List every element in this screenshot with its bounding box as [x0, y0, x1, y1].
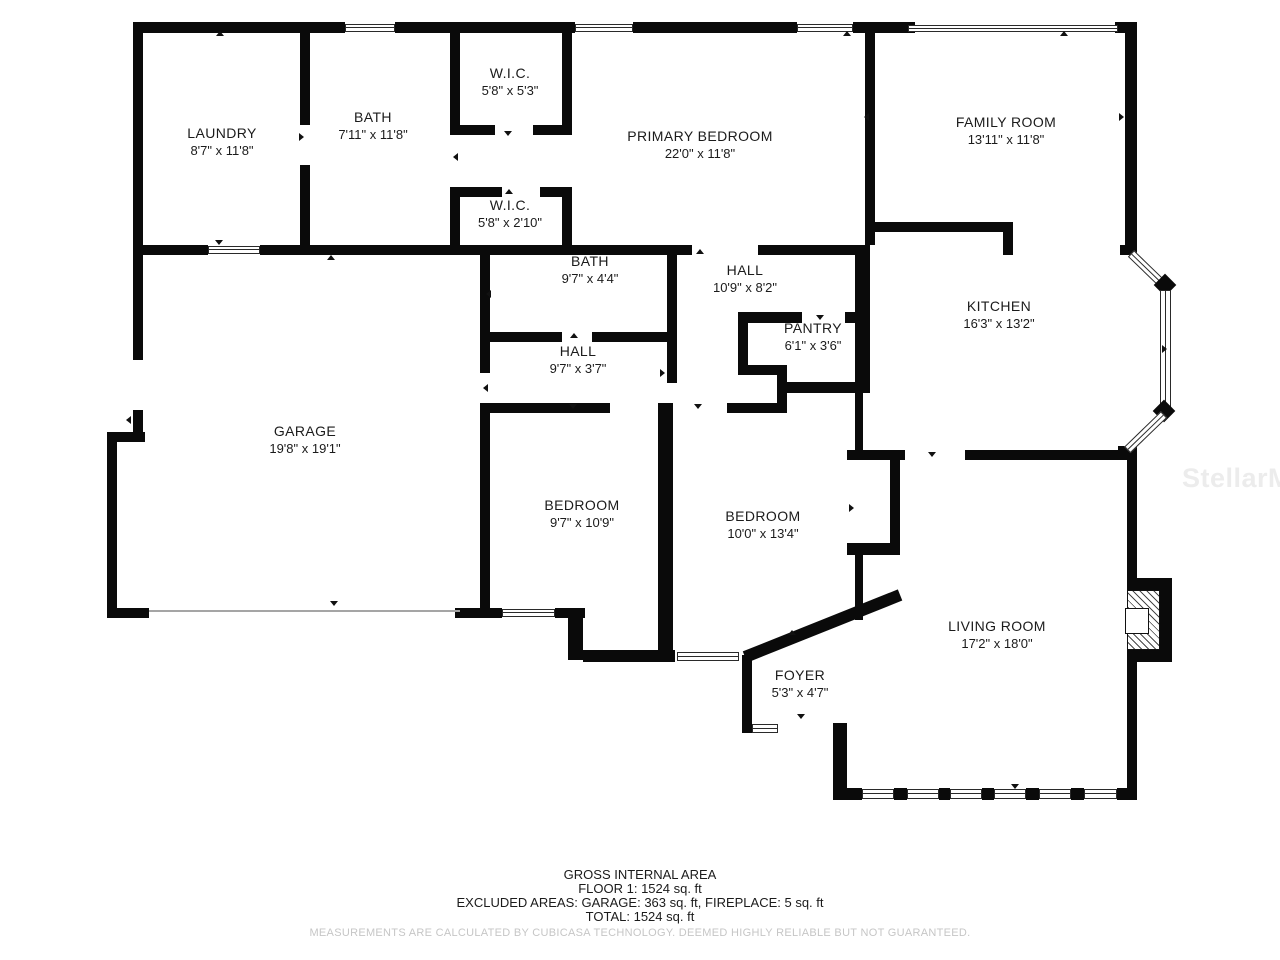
- window: [502, 609, 555, 617]
- room-name: W.I.C.: [478, 197, 542, 214]
- window: [994, 789, 1026, 799]
- wall: [890, 450, 900, 555]
- floor-plan: LAUNDRY 8'7" x 11'8" BATH 7'11" x 11'8" …: [0, 0, 1280, 960]
- room-dimensions: 10'9" x 8'2": [713, 279, 777, 296]
- door-arrow-icon: [330, 601, 338, 606]
- wall: [260, 245, 692, 255]
- room-dimensions: 6'1" x 3'6": [784, 337, 842, 354]
- window: [1084, 789, 1117, 799]
- room-name: HALL: [713, 262, 777, 279]
- door-arrow-icon: [696, 249, 704, 254]
- door-arrow-icon: [504, 131, 512, 136]
- wall: [450, 187, 460, 245]
- wall: [667, 253, 677, 342]
- door-arrow-icon: [299, 133, 304, 141]
- wall: [1115, 22, 1137, 33]
- wall: [133, 22, 345, 33]
- wall: [1003, 232, 1013, 255]
- room-label-living-room: LIVING ROOM 17'2" x 18'0": [948, 618, 1046, 652]
- room-name: FOYER: [772, 667, 829, 684]
- door-arrow-icon: [1011, 784, 1019, 789]
- wall: [1117, 788, 1137, 800]
- window: [345, 24, 395, 32]
- room-name: BATH: [562, 253, 619, 270]
- wall: [855, 393, 863, 458]
- wall: [894, 788, 907, 800]
- wall: [1127, 459, 1137, 578]
- bay-window: [1124, 411, 1167, 453]
- door-arrow-icon: [570, 333, 578, 338]
- room-label-wic-upper: W.I.C. 5'8" x 5'3": [482, 65, 539, 99]
- room-label-hall-lower: HALL 9'7" x 3'7": [550, 343, 607, 377]
- room-label-bedroom-right: BEDROOM 10'0" x 13'4": [725, 508, 800, 542]
- room-dimensions: 22'0" x 11'8": [627, 145, 773, 162]
- room-name: FAMILY ROOM: [956, 114, 1056, 131]
- wall: [727, 403, 782, 413]
- wall: [1127, 662, 1137, 788]
- door-arrow-icon: [215, 240, 223, 245]
- window: [907, 789, 939, 799]
- wall: [583, 650, 675, 662]
- room-dimensions: 5'8" x 5'3": [482, 82, 539, 99]
- wall: [758, 245, 870, 255]
- room-name: HALL: [550, 343, 607, 360]
- room-dimensions: 10'0" x 13'4": [725, 525, 800, 542]
- room-dimensions: 5'3" x 4'7": [772, 684, 829, 701]
- room-label-pantry: PANTRY 6'1" x 3'6": [784, 320, 842, 354]
- door-arrow-icon: [327, 255, 335, 260]
- room-dimensions: 13'11" x 11'8": [956, 131, 1056, 148]
- total-area: TOTAL: 1524 sq. ft: [0, 910, 1280, 924]
- door-arrow-icon: [483, 384, 488, 392]
- room-dimensions: 9'7" x 4'4": [562, 270, 619, 287]
- door-arrow-icon: [849, 504, 854, 512]
- wall: [1071, 788, 1084, 800]
- wall: [480, 253, 490, 373]
- gross-internal-area-title: GROSS INTERNAL AREA: [0, 868, 1280, 882]
- wall: [562, 32, 572, 135]
- room-label-hall-upper: HALL 10'9" x 8'2": [713, 262, 777, 296]
- foyer-diagonal-wall: [743, 589, 903, 662]
- wall: [555, 608, 585, 618]
- wall: [847, 788, 862, 800]
- room-name: PRIMARY BEDROOM: [627, 128, 773, 145]
- wall: [865, 222, 1013, 232]
- wall: [845, 312, 870, 323]
- wall: [107, 432, 117, 618]
- room-name: GARAGE: [269, 423, 340, 440]
- wall: [455, 608, 502, 618]
- wall: [568, 618, 583, 660]
- room-dimensions: 8'7" x 11'8": [187, 142, 256, 159]
- wall: [853, 22, 915, 33]
- room-label-bedroom-left: BEDROOM 9'7" x 10'9": [544, 497, 619, 531]
- wall: [562, 187, 572, 245]
- door-arrow-icon: [216, 31, 224, 36]
- room-name: BEDROOM: [725, 508, 800, 525]
- wall: [658, 403, 673, 662]
- wall: [939, 788, 950, 800]
- window: [208, 246, 260, 254]
- door-arrow-icon: [126, 416, 131, 424]
- room-label-family-room: FAMILY ROOM 13'11" x 11'8": [956, 114, 1056, 148]
- room-label-primary-bedroom: PRIMARY BEDROOM 22'0" x 11'8": [627, 128, 773, 162]
- door-arrow-icon: [569, 404, 577, 409]
- door-arrow-icon: [486, 290, 491, 298]
- room-label-bath-upper: BATH 7'11" x 11'8": [338, 109, 407, 143]
- wall: [742, 655, 752, 733]
- wall: [1125, 33, 1137, 255]
- wall: [133, 22, 143, 360]
- window: [862, 789, 894, 799]
- wall: [107, 608, 149, 618]
- door-arrow-icon: [694, 404, 702, 409]
- window: [752, 724, 778, 733]
- wall: [450, 125, 495, 135]
- room-name: LAUNDRY: [187, 125, 256, 142]
- room-label-kitchen: KITCHEN 16'3" x 13'2": [963, 298, 1034, 332]
- wall: [787, 382, 870, 393]
- wall: [480, 403, 490, 618]
- door-arrow-icon: [1060, 31, 1068, 36]
- door-arrow-icon: [843, 31, 851, 36]
- door-arrow-icon: [505, 189, 513, 194]
- wall: [667, 342, 677, 383]
- measurement-disclaimer: MEASUREMENTS ARE CALCULATED BY CUBICASA …: [0, 926, 1280, 940]
- wall: [865, 32, 875, 245]
- room-label-wic-lower: W.I.C. 5'8" x 2'10": [478, 197, 542, 231]
- room-dimensions: 5'8" x 2'10": [478, 214, 542, 231]
- wall: [450, 32, 460, 135]
- door-arrow-icon: [928, 452, 936, 457]
- door-arrow-icon: [797, 714, 805, 719]
- door-arrow-icon: [1119, 113, 1124, 121]
- window: [950, 789, 982, 799]
- room-label-laundry: LAUNDRY 8'7" x 11'8": [187, 125, 256, 159]
- wall: [833, 723, 847, 800]
- room-name: BEDROOM: [544, 497, 619, 514]
- wall: [490, 332, 562, 342]
- wall: [738, 312, 748, 375]
- wall: [300, 165, 310, 245]
- room-dimensions: 16'3" x 13'2": [963, 315, 1034, 332]
- door-arrow-icon: [788, 630, 796, 635]
- wall: [592, 332, 667, 342]
- wall: [1127, 650, 1172, 662]
- room-name: LIVING ROOM: [948, 618, 1046, 635]
- room-name: PANTRY: [784, 320, 842, 337]
- window: [1039, 789, 1071, 799]
- room-label-bath-middle: BATH 9'7" x 4'4": [562, 253, 619, 287]
- area-summary: GROSS INTERNAL AREA FLOOR 1: 1524 sq. ft…: [0, 868, 1280, 940]
- room-dimensions: 19'8" x 19'1": [269, 440, 340, 457]
- wall: [965, 450, 1137, 460]
- window: [575, 24, 633, 32]
- door-arrow-icon: [453, 153, 458, 161]
- room-dimensions: 9'7" x 3'7": [550, 360, 607, 377]
- room-dimensions: 7'11" x 11'8": [338, 126, 407, 143]
- room-name: W.I.C.: [482, 65, 539, 82]
- wall: [633, 22, 797, 33]
- wall: [300, 32, 310, 125]
- fireplace-firebox: [1125, 608, 1149, 634]
- door-arrow-icon: [660, 369, 665, 377]
- room-name: KITCHEN: [963, 298, 1034, 315]
- floor1-area: FLOOR 1: 1524 sq. ft: [0, 882, 1280, 896]
- wall: [487, 403, 610, 413]
- room-label-garage: GARAGE 19'8" x 19'1": [269, 423, 340, 457]
- wall: [847, 543, 900, 555]
- wall: [395, 22, 575, 33]
- garage-door: [149, 610, 460, 612]
- excluded-areas: EXCLUDED AREAS: GARAGE: 363 sq. ft, FIRE…: [0, 896, 1280, 910]
- room-name: BATH: [338, 109, 407, 126]
- wall: [982, 788, 994, 800]
- door-arrow-icon: [1162, 345, 1167, 353]
- room-dimensions: 17'2" x 18'0": [948, 635, 1046, 652]
- room-label-foyer: FOYER 5'3" x 4'7": [772, 667, 829, 701]
- window: [908, 25, 1118, 32]
- wall: [1026, 788, 1039, 800]
- wall: [133, 245, 208, 255]
- stellar-mls-watermark: StellarMLS: [1182, 463, 1280, 494]
- window: [677, 652, 739, 661]
- door-arrow-icon: [864, 113, 869, 121]
- room-dimensions: 9'7" x 10'9": [544, 514, 619, 531]
